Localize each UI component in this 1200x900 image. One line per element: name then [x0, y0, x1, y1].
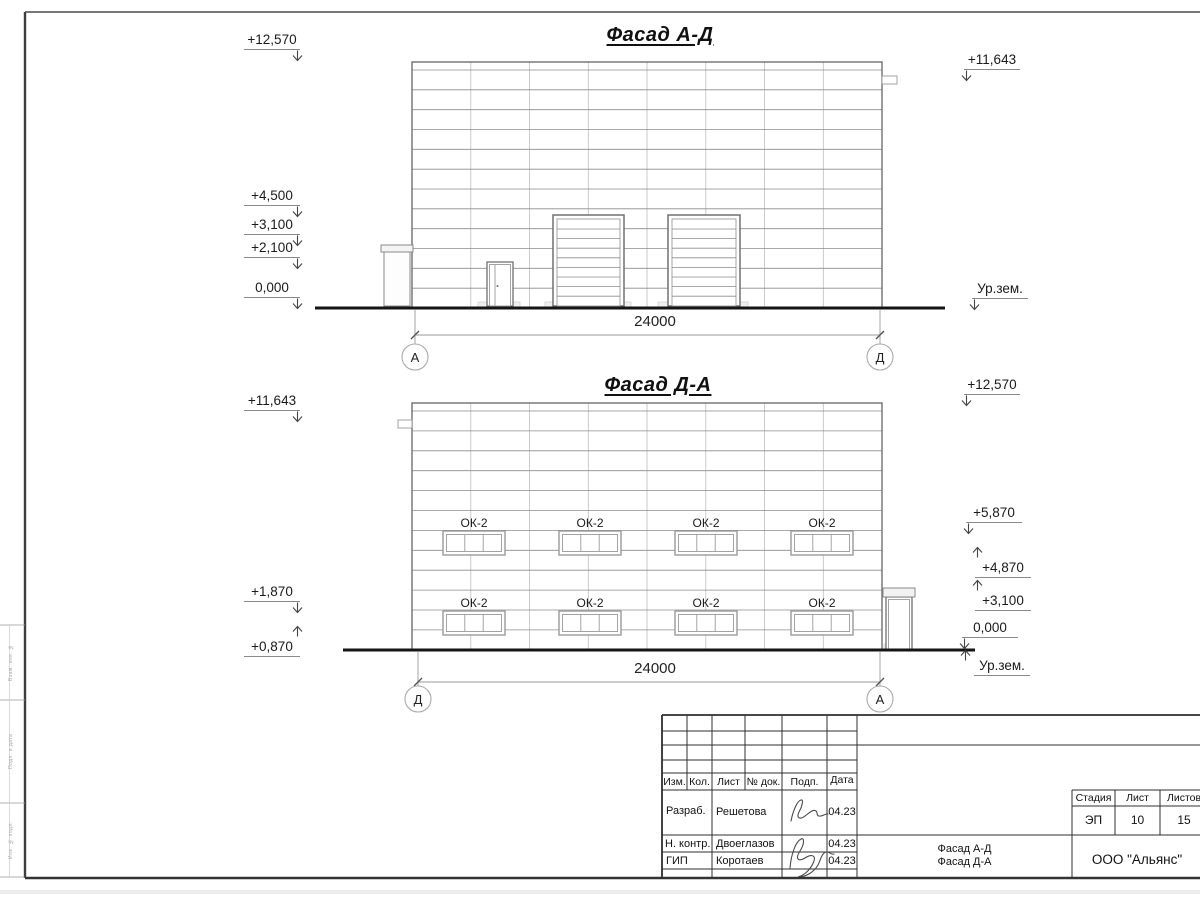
elevation-arrow-up-icon	[960, 649, 971, 661]
window-label: ОК-2	[675, 516, 737, 530]
titleblock-col-data: Дата	[827, 774, 857, 786]
titleblock-col-podp: Подп.	[782, 776, 827, 788]
elevation-value: +5,870	[973, 505, 1015, 520]
elevation-value: 0,000	[255, 280, 289, 295]
facade2-axis-left: Д	[404, 692, 432, 707]
margin-label-vzam: Взам. инв. №	[0, 625, 22, 700]
elevation-mark: +3,100	[975, 593, 1031, 611]
elevation-value: +2,100	[251, 240, 293, 255]
window-label: ОК-2	[675, 596, 737, 610]
elevation-mark: +12,570	[244, 32, 300, 50]
elevation-arrow-up-icon	[972, 546, 983, 558]
sheets-label: Листов	[1160, 792, 1200, 804]
elevation-value: +3,100	[982, 593, 1024, 608]
gate-1	[553, 215, 624, 306]
elevation-arrow-up-icon	[972, 579, 983, 591]
date-nkontr: 04.23	[827, 838, 857, 850]
elevation-arrow-down-icon	[961, 395, 972, 407]
document-title-line1: Фасад А-Д	[857, 843, 1072, 856]
elevation-arrow-down-icon	[963, 523, 974, 535]
gutter-tab	[882, 76, 897, 84]
margin-label-inv: Инв. № подл.	[0, 803, 22, 877]
role-nkontr: Н. контр.	[665, 838, 710, 850]
titleblock-col-dok: № док.	[745, 776, 782, 788]
facade2-axis-right: А	[866, 692, 894, 707]
facade1-axis-right: Д	[866, 350, 894, 365]
drawing-linework	[0, 0, 1200, 900]
ground-level-mark: Ур.зем.	[972, 281, 1028, 299]
windows-row-2	[443, 611, 853, 635]
facade1-title: Фасад А-Д	[560, 24, 760, 47]
elevation-value: +11,643	[248, 393, 296, 408]
window-label: ОК-2	[559, 516, 621, 530]
window-label: ОК-2	[559, 596, 621, 610]
elevation-value: +12,570	[967, 377, 1016, 392]
sheets-total: 15	[1160, 813, 1200, 827]
date-gip: 04.23	[827, 855, 857, 867]
cabinet	[381, 245, 413, 306]
window-label: ОК-2	[443, 596, 505, 610]
elevation-arrow-down-icon	[292, 298, 303, 310]
elevation-mark: +2,100	[244, 240, 300, 258]
facade2-title: Фасад Д-А	[558, 374, 758, 397]
name-razrab: Решетова	[716, 806, 766, 818]
elevation-arrow-down-icon	[961, 70, 972, 82]
sheet-number: 10	[1115, 813, 1160, 827]
elevation-value: +3,100	[251, 217, 293, 232]
titleblock-col-kol: Кол.	[687, 776, 712, 788]
entrance-door	[487, 262, 513, 306]
elevation-arrow-up-icon	[292, 625, 303, 637]
company-name: ООО "Альянс"	[1072, 852, 1200, 867]
titleblock-col-izm: Изм.	[662, 776, 687, 788]
elevation-value: 0,000	[973, 620, 1007, 635]
elevation-value: +4,500	[251, 188, 293, 203]
role-razrab: Разраб.	[666, 805, 706, 817]
elevation-mark: +0,870	[244, 639, 300, 657]
document-title: Фасад А-Д Фасад Д-А	[857, 843, 1072, 869]
margin-label-podp: Подп. и дата	[0, 700, 22, 803]
elevation-mark: +12,570	[964, 377, 1020, 395]
ground-level-mark: Ур.зем.	[974, 658, 1030, 676]
titleblock-col-list: Лист	[712, 776, 745, 788]
document-title-line2: Фасад Д-А	[857, 856, 1072, 869]
elevation-mark: +11,643	[244, 393, 300, 411]
elevation-value: +1,870	[251, 584, 293, 599]
elevation-arrow-down-icon	[292, 258, 303, 270]
facade2-dim-label: 24000	[595, 660, 715, 677]
facade1-dim-label: 24000	[595, 313, 715, 330]
gate-2	[668, 215, 740, 306]
window-label: ОК-2	[791, 516, 853, 530]
facade1-axis-left: А	[401, 350, 429, 365]
elevation-value: +12,570	[247, 32, 296, 47]
window-label: ОК-2	[791, 596, 853, 610]
date-razrab: 04.23	[827, 806, 857, 818]
elevation-value: +0,870	[251, 639, 293, 654]
sheet-label: Лист	[1115, 792, 1160, 804]
role-gip: ГИП	[666, 855, 688, 867]
window-label: ОК-2	[443, 516, 505, 530]
elevation-mark: +4,870	[975, 560, 1031, 578]
side-door	[883, 588, 915, 650]
elevation-mark: 0,000	[962, 620, 1018, 638]
elevation-arrow-down-icon	[292, 602, 303, 614]
elevation-mark: +5,870	[966, 505, 1022, 523]
sheet-frame	[0, 12, 1200, 894]
elevation-mark: 0,000	[244, 280, 300, 298]
elevation-mark: +4,500	[244, 188, 300, 206]
elevation-mark: +3,100	[244, 217, 300, 235]
stage-value: ЭП	[1072, 813, 1115, 827]
signature-razrab	[791, 800, 828, 821]
windows-row-1	[443, 531, 853, 555]
elevation-arrow-down-icon	[292, 50, 303, 62]
gutter-tab	[398, 420, 412, 428]
elevation-value: Ур.зем.	[979, 658, 1025, 673]
elevation-value: +4,870	[982, 560, 1024, 575]
elevation-mark: +1,870	[244, 584, 300, 602]
elevation-arrow-down-icon	[292, 411, 303, 423]
cad-drawing-sheet: { "frame": { "margin_labels": ["Взам. ин…	[0, 0, 1200, 900]
elevation-mark: +11,643	[964, 52, 1020, 70]
elevation-value: +11,643	[968, 52, 1016, 67]
name-gip: Коротаев	[716, 855, 764, 867]
elevation-arrow-down-icon	[969, 299, 980, 311]
elevation-value: Ур.зем.	[977, 281, 1023, 296]
stage-label: Стадия	[1072, 792, 1115, 804]
name-nkontr: Двоеглазов	[716, 838, 774, 850]
